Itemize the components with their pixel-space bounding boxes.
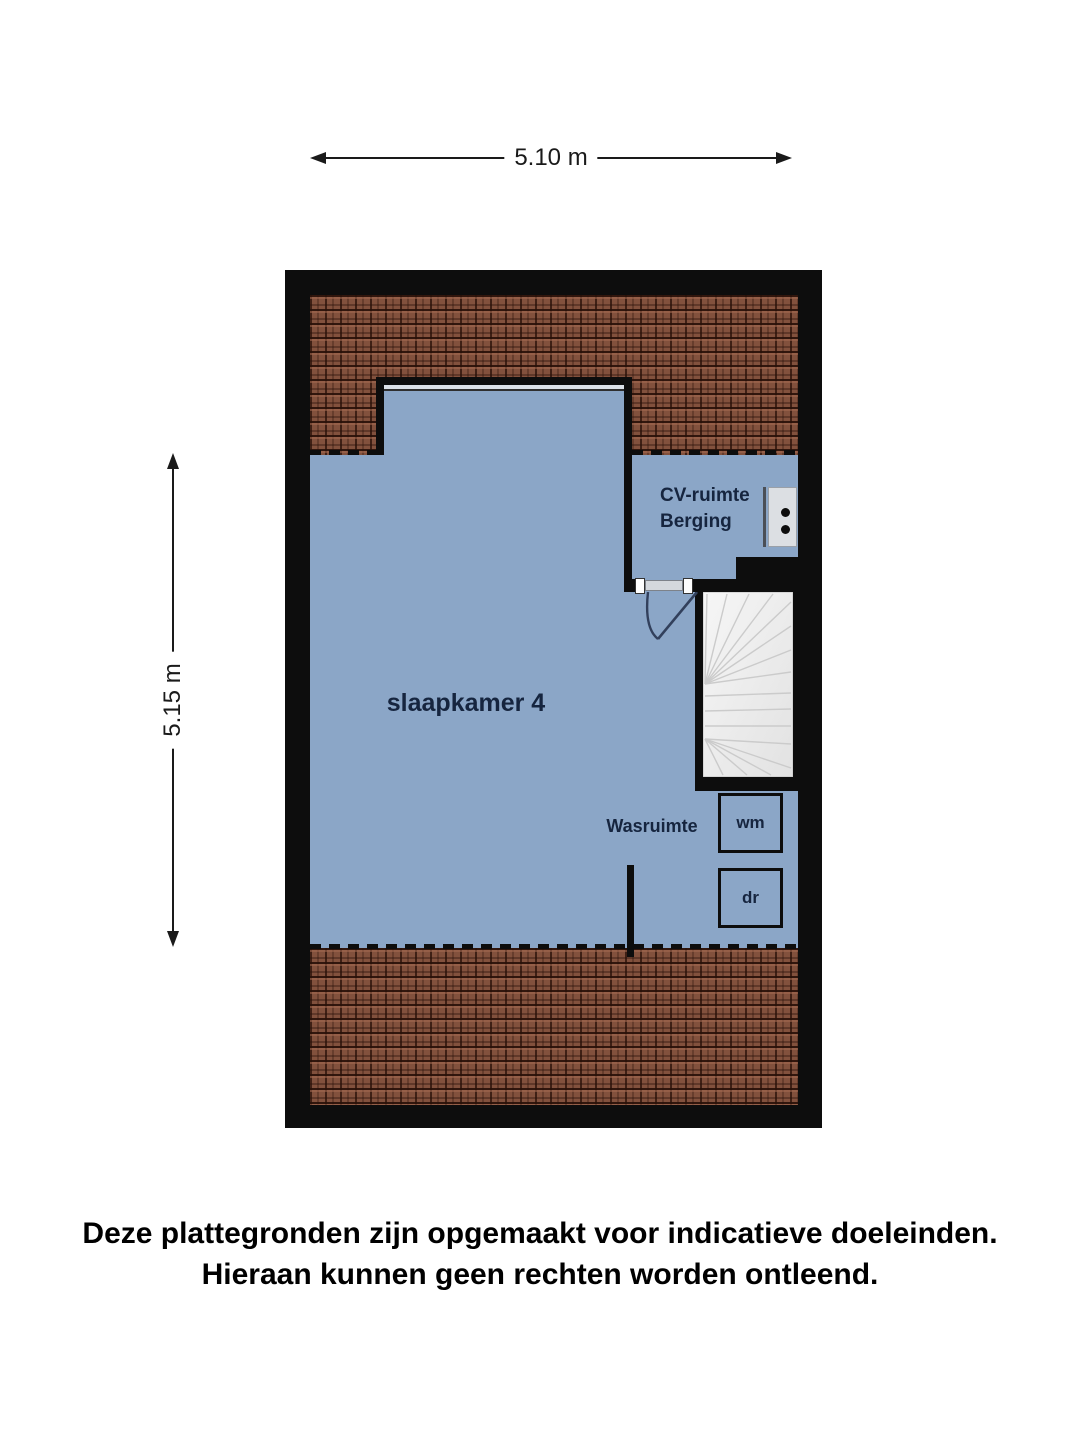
- roofline-dashed-top-right: [632, 450, 798, 455]
- door-swing-arc: [630, 592, 705, 647]
- dimension-top: 5.10 m: [310, 146, 792, 170]
- roofline-dashed-bottom: [310, 944, 798, 949]
- stairwell-bottom-wall: [695, 777, 798, 791]
- stairwell-right-wall: [793, 557, 798, 791]
- cv-room-label-line2: Berging: [660, 509, 790, 535]
- floorplan-interior: wm dr slaapkamer 4 CV-ruimte Berging Was…: [310, 295, 798, 1105]
- floorplan-page: 5.10 m 5.15 m: [0, 0, 1080, 1440]
- door-leaf-closed: [645, 580, 683, 591]
- washing-machine-label: wm: [736, 813, 764, 833]
- cv-partition-wall: [624, 377, 632, 592]
- stair-landing-wall-block: [736, 557, 798, 592]
- dimension-top-label: 5.10 m: [504, 144, 597, 172]
- dryer-box: dr: [718, 868, 783, 928]
- roof-tiles-bottom: [310, 948, 798, 1105]
- dormer-window: [384, 389, 624, 391]
- bedroom-label: slaapkamer 4: [316, 689, 616, 718]
- disclaimer-line2: Hieraan kunnen geen rechten worden ontle…: [0, 1254, 1080, 1295]
- cv-room-label-line1: CV-ruimte: [660, 483, 790, 509]
- cv-room-label: CV-ruimte Berging: [660, 483, 790, 535]
- stairs: [703, 592, 793, 777]
- dimension-left-label: 5.15 m: [159, 651, 187, 748]
- disclaimer-text: Deze plattegronden zijn opgemaakt voor i…: [0, 1213, 1080, 1295]
- dormer: [376, 377, 632, 455]
- disclaimer-line1: Deze plattegronden zijn opgemaakt voor i…: [0, 1213, 1080, 1254]
- dryer-label: dr: [742, 888, 759, 908]
- washing-machine-box: wm: [718, 793, 783, 853]
- laundry-label: Wasruimte: [582, 816, 722, 837]
- floorplan-outer-wall: wm dr slaapkamer 4 CV-ruimte Berging Was…: [285, 270, 822, 1128]
- roofline-dashed-top-left: [310, 450, 376, 455]
- laundry-divider-wall: [627, 865, 634, 957]
